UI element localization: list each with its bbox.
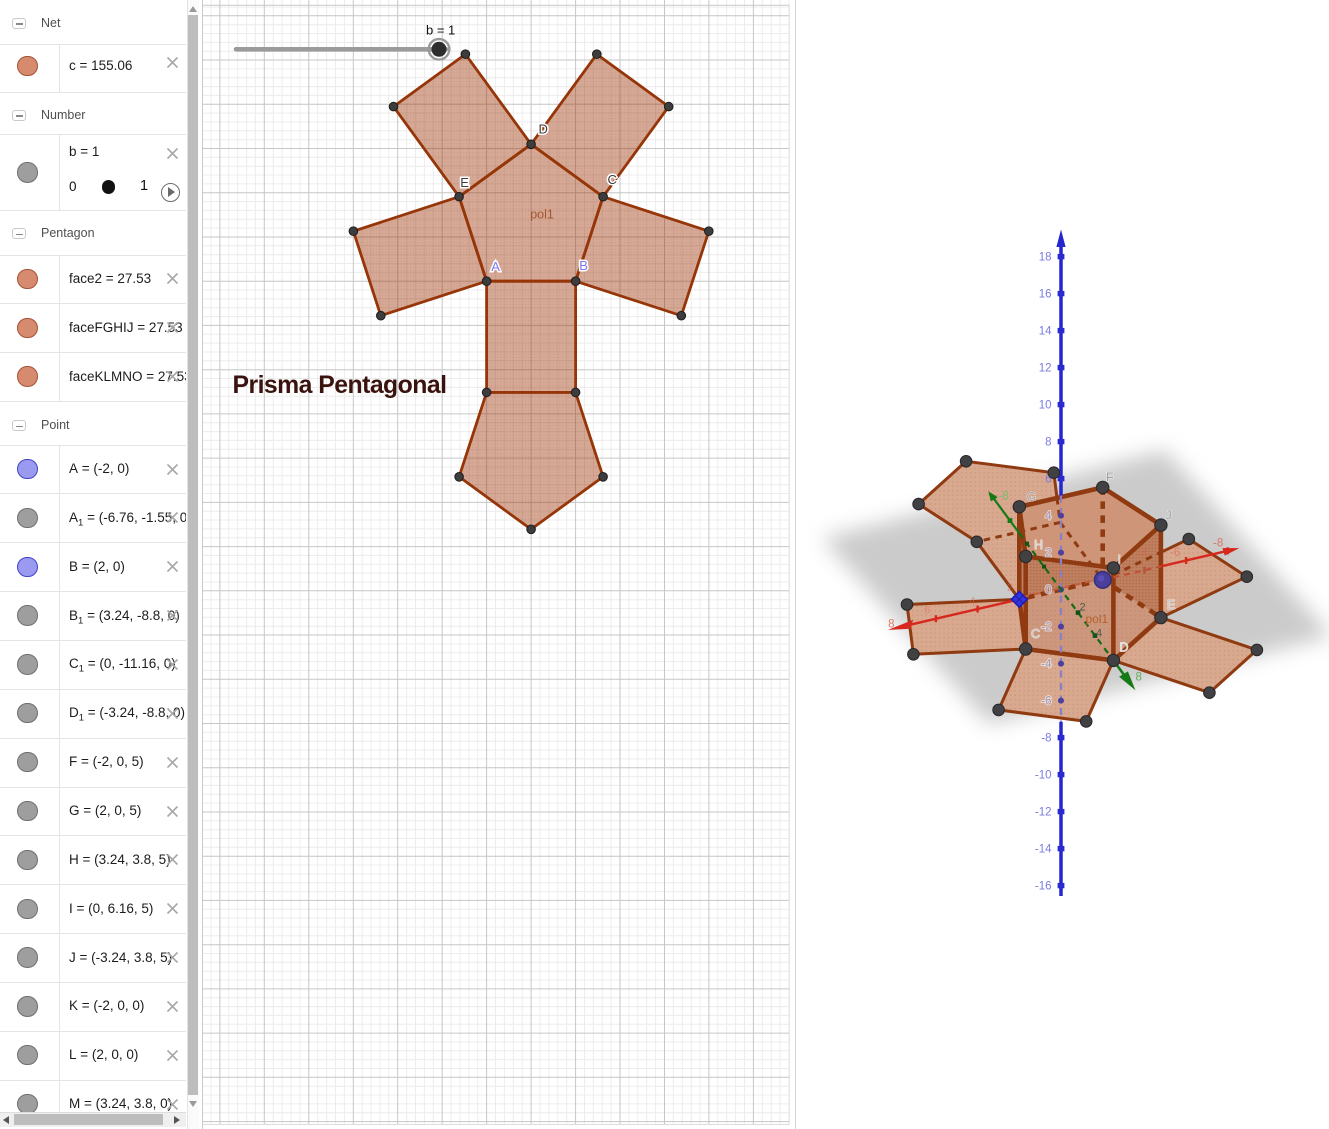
svg-text:-4: -4 [1137,548,1148,560]
svg-text:-14: -14 [1035,844,1052,856]
svg-text:E: E [460,175,469,190]
svg-text:D: D [539,122,548,137]
svg-text:14: 14 [1039,326,1052,338]
svg-text:18: 18 [1039,252,1052,264]
svg-text:C: C [1031,627,1040,641]
svg-text:-2: -2 [1041,622,1051,634]
svg-text:-16: -16 [1035,881,1052,893]
svg-text:F: F [1106,471,1114,485]
svg-text:4: 4 [969,597,976,609]
svg-text:-10: -10 [1035,770,1052,782]
svg-text:2: 2 [1045,548,1051,560]
svg-text:Prisma Pentagonal: Prisma Pentagonal [233,372,448,399]
svg-text:2: 2 [1007,582,1013,594]
svg-text:pol1: pol1 [530,208,554,222]
svg-text:A: A [491,259,500,274]
svg-text:E: E [1167,598,1175,612]
svg-text:-4: -4 [1041,659,1052,671]
svg-text:H: H [1034,538,1043,552]
svg-text:8: 8 [1045,437,1051,449]
svg-text:-8: -8 [1041,733,1051,745]
svg-text:J: J [1166,509,1172,523]
svg-text:16: 16 [1039,289,1052,301]
svg-text:-6: -6 [1041,696,1051,708]
svg-text:0: 0 [1045,585,1051,597]
svg-text:-8: -8 [999,491,1009,503]
svg-text:4: 4 [1096,628,1102,640]
svg-text:G: G [1027,490,1037,504]
svg-text:-6: -6 [1170,547,1180,559]
svg-text:4: 4 [1045,511,1052,523]
svg-text:D: D [1120,641,1129,655]
svg-text:-12: -12 [1035,807,1052,819]
svg-text:b = 1: b = 1 [426,23,455,38]
svg-text:8: 8 [1136,672,1142,684]
svg-text:pol1: pol1 [1086,612,1109,626]
svg-text:C: C [608,172,617,187]
svg-text:6: 6 [924,605,930,617]
svg-text:B: B [579,258,588,273]
svg-text:10: 10 [1039,400,1052,412]
svg-text:8: 8 [888,619,894,631]
svg-text:-8: -8 [1213,538,1223,550]
svg-text:12: 12 [1039,363,1052,375]
